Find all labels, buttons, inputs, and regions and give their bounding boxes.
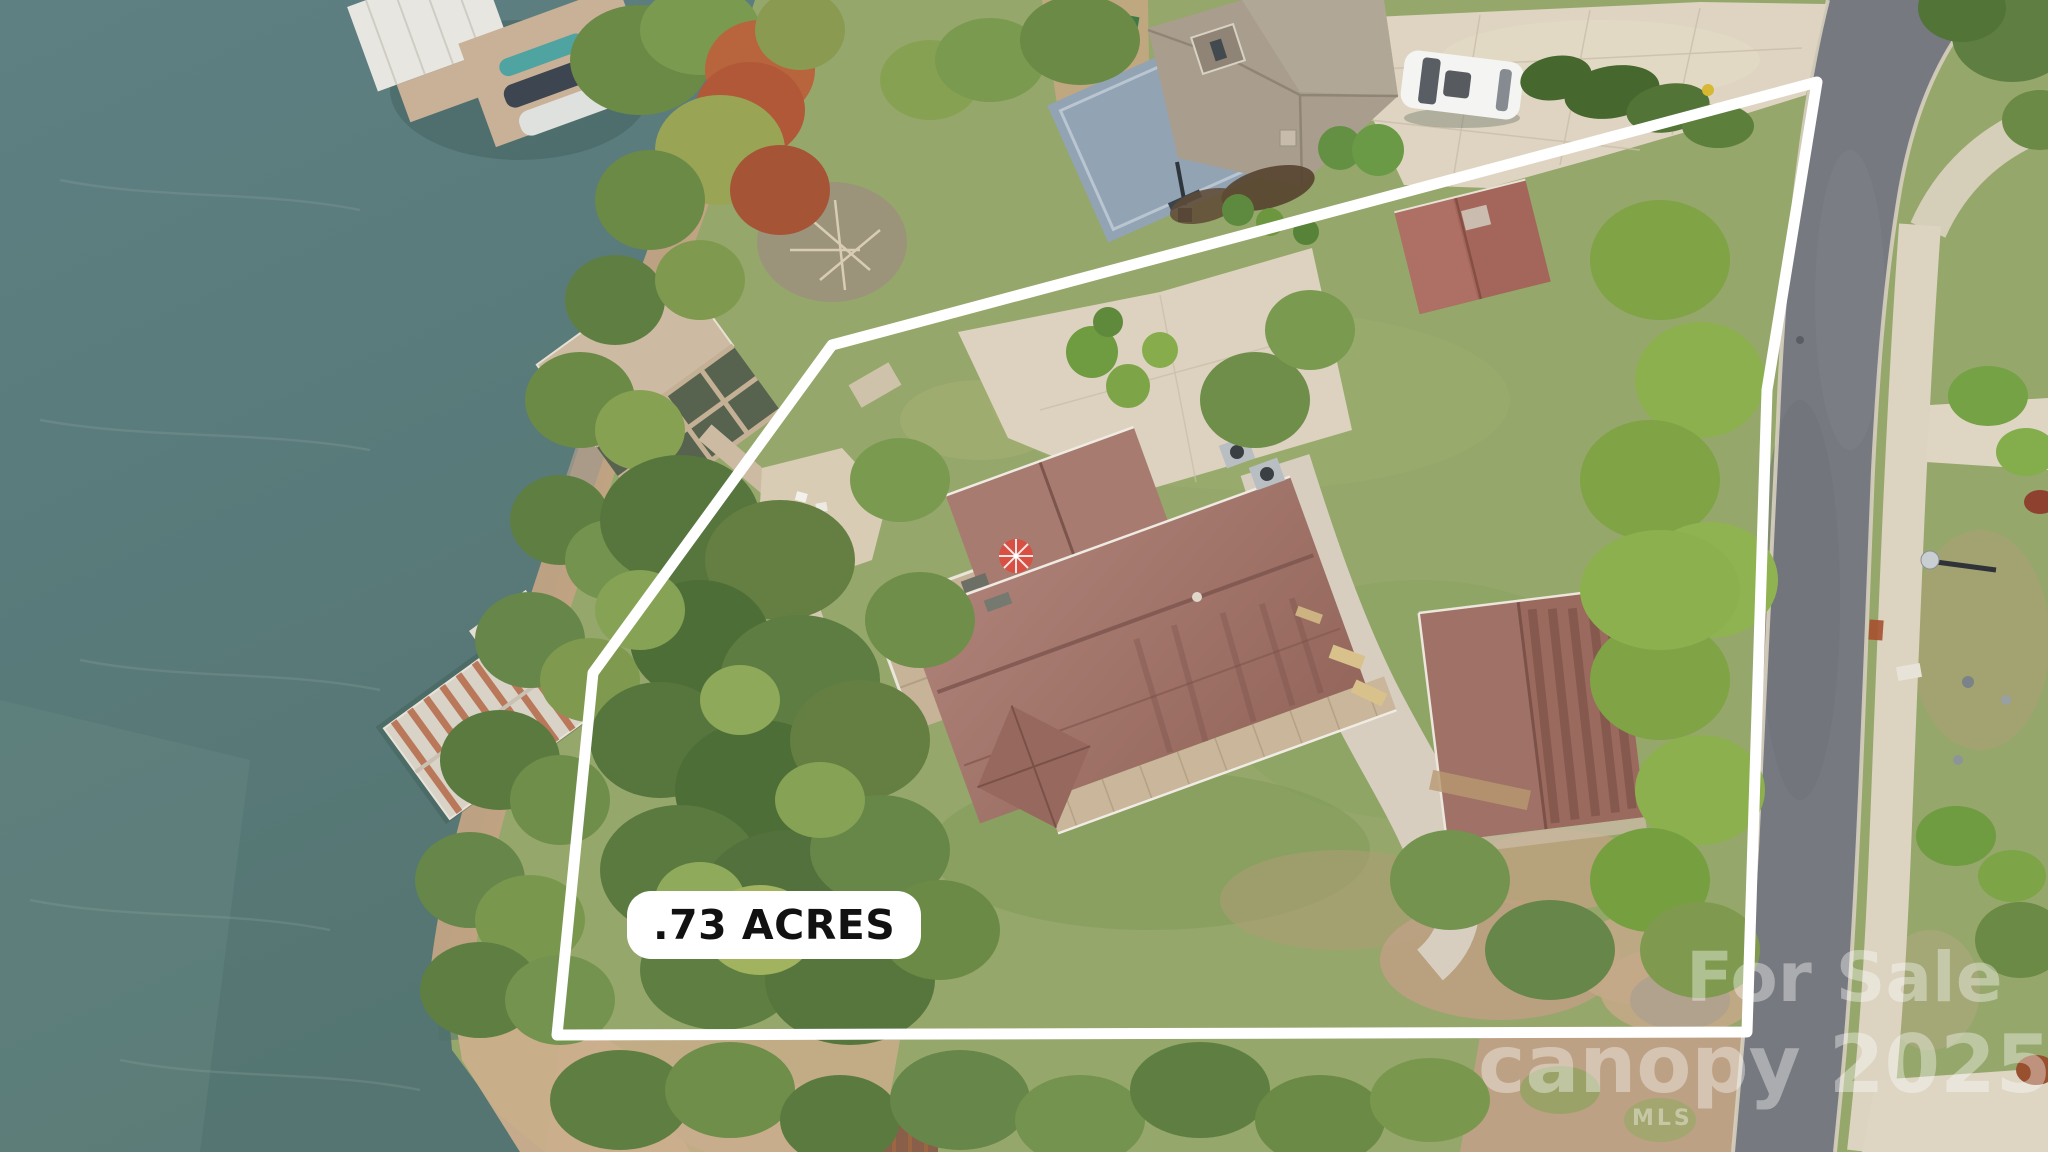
watermark-year: 2025 <box>1829 1018 2048 1111</box>
acreage-label: .73 ACRES <box>627 891 921 959</box>
chimney <box>1280 130 1296 146</box>
watermark-brand-year: canopyMLS2025 <box>1478 1018 2048 1111</box>
watermark-brand-sub: MLS <box>1632 1106 1693 1131</box>
watermark-for-sale: For Sale <box>1686 938 2003 1018</box>
fire-hydrant <box>1702 84 1714 96</box>
patio-umbrella <box>999 539 1033 573</box>
aerial-photo: .73 ACRES For Sale canopyMLS2025 <box>0 0 2048 1152</box>
acreage-text: .73 ACRES <box>653 901 895 949</box>
watermark-brand: canopy <box>1478 1018 1801 1111</box>
watermark-line1: For Sale <box>1686 938 2003 1018</box>
